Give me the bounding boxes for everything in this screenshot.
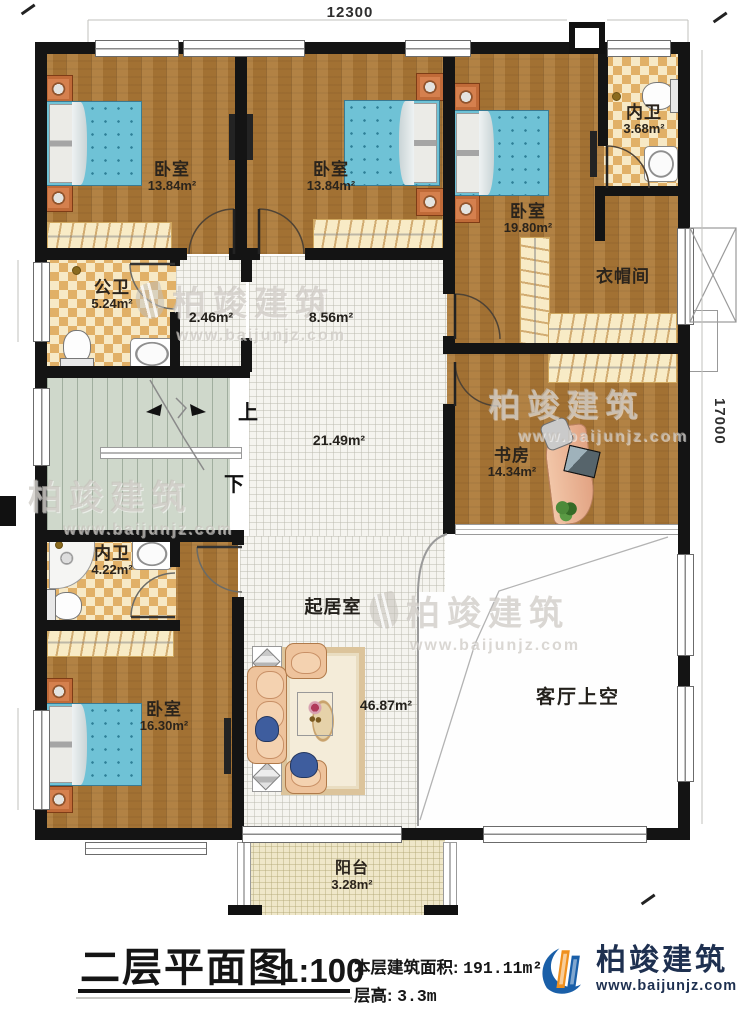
window bbox=[677, 554, 694, 656]
wall bbox=[241, 260, 252, 282]
window bbox=[95, 40, 179, 57]
wall bbox=[35, 366, 250, 378]
floor-corridor-hall bbox=[249, 256, 447, 544]
label-hall: 21.49m² bbox=[299, 433, 379, 448]
title-rule-thin bbox=[76, 997, 352, 999]
dimension-tick bbox=[641, 894, 656, 905]
sink-ensuite-top bbox=[644, 146, 678, 182]
wall bbox=[443, 343, 678, 354]
cloakroom-rack-top bbox=[548, 313, 677, 345]
dimension-right: 17000 bbox=[711, 398, 728, 445]
label-bedroom-d: 卧室16.30m² bbox=[119, 701, 209, 732]
brand-logo: 柏竣建筑 www.baijunjz.com bbox=[536, 941, 737, 999]
toilet-ensuite-bottom bbox=[52, 592, 82, 620]
cloakroom-rack-vertical bbox=[520, 237, 550, 345]
sofa-long bbox=[247, 666, 287, 764]
wall bbox=[443, 54, 455, 260]
light-fixture bbox=[55, 541, 63, 549]
dimension-top: 12300 bbox=[310, 4, 390, 21]
floor-height-label: 层高: bbox=[354, 987, 393, 1005]
brand-logo-icon bbox=[536, 941, 590, 999]
window bbox=[183, 40, 305, 57]
wall bbox=[598, 186, 690, 196]
nightstand bbox=[416, 73, 444, 101]
floor-living-void bbox=[445, 530, 678, 830]
wall bbox=[443, 260, 455, 294]
wall bbox=[595, 186, 605, 241]
nightstand bbox=[452, 83, 480, 111]
wall bbox=[229, 248, 247, 260]
wall bbox=[232, 530, 244, 545]
floor-area-line: 本层建筑面积: 191.11m² bbox=[354, 954, 542, 978]
label-bedroom-a: 卧室13.84m² bbox=[127, 161, 217, 192]
drawing-scale: 1:100 bbox=[280, 952, 364, 990]
lamp-table bbox=[252, 760, 282, 792]
person-figure bbox=[290, 752, 318, 778]
bed-bedroom-c bbox=[453, 110, 549, 196]
label-stair-up: 上 bbox=[238, 396, 258, 425]
wardrobe-bedroom-b bbox=[313, 219, 443, 250]
wardrobe-bedroom-a bbox=[47, 222, 172, 251]
window bbox=[677, 228, 694, 325]
wardrobe-bedroom-d bbox=[47, 628, 174, 657]
wall bbox=[235, 54, 247, 254]
wall bbox=[241, 338, 252, 372]
balcony-sliding-door bbox=[242, 826, 402, 843]
label-ensuite-top: 内卫3.68m² bbox=[604, 104, 684, 135]
label-study: 书房14.34m² bbox=[467, 447, 557, 478]
label-public-bath: 公卫5.24m² bbox=[67, 279, 157, 310]
window-sill bbox=[85, 842, 207, 855]
window bbox=[405, 40, 471, 57]
wall bbox=[35, 620, 180, 631]
window bbox=[33, 388, 50, 466]
nightstand bbox=[45, 678, 73, 705]
nightstand bbox=[452, 195, 480, 223]
floor-height-value: 3.3m bbox=[397, 987, 437, 1006]
light-fixture bbox=[612, 92, 621, 101]
floor-area-value: 191.11m² bbox=[463, 959, 542, 978]
armchair-top bbox=[285, 643, 327, 679]
coffee-table bbox=[297, 692, 333, 736]
column bbox=[0, 496, 16, 526]
nightstand bbox=[416, 188, 444, 216]
window bbox=[607, 40, 671, 57]
wall bbox=[247, 248, 260, 260]
dimension-tick bbox=[21, 4, 36, 15]
wall bbox=[305, 248, 455, 260]
wall bbox=[35, 248, 187, 260]
label-living-void: 客厅上空 bbox=[518, 688, 638, 708]
drawing-title: 二层平面图 bbox=[80, 948, 290, 988]
label-stair-down: 下 bbox=[224, 468, 244, 497]
title-block: 二层平面图 1:100 本层建筑面积: 191.11m² 层高: 3.3m 柏竣… bbox=[0, 915, 750, 1017]
tv-bedroom-b bbox=[247, 114, 253, 160]
wall bbox=[443, 500, 455, 534]
window bbox=[33, 710, 50, 810]
label-ensuite-bottom: 内卫4.22m² bbox=[67, 545, 157, 576]
person-figure bbox=[255, 716, 279, 742]
brand-name: 柏竣建筑 bbox=[596, 946, 737, 976]
nightstand bbox=[44, 75, 73, 103]
wall bbox=[232, 597, 244, 828]
label-balcony: 阳台3.28m² bbox=[312, 861, 392, 891]
floor-plan-drawing: 12300 17000 柏竣建筑 www.baijunjz.com 柏竣建筑 w… bbox=[0, 0, 750, 915]
study-plant bbox=[554, 500, 578, 522]
label-living-area: 46.87m² bbox=[346, 698, 426, 713]
wall bbox=[170, 260, 180, 266]
tv-bedroom-c bbox=[590, 131, 597, 177]
label-hall-small: 2.46m² bbox=[171, 310, 251, 325]
floor-plan-page: 12300 17000 柏竣建筑 www.baijunjz.com 柏竣建筑 w… bbox=[0, 0, 750, 1017]
label-corridor: 8.56m² bbox=[291, 310, 371, 325]
stair-handrail bbox=[100, 447, 242, 459]
label-bedroom-c: 卧室19.80m² bbox=[483, 203, 573, 234]
void-edge-rail bbox=[455, 524, 680, 535]
wall bbox=[35, 530, 242, 542]
light-fixture bbox=[72, 266, 81, 275]
dimension-tick bbox=[713, 12, 728, 23]
brand-url: www.baijunjz.com bbox=[596, 978, 737, 994]
cloakroom-rack-bottom bbox=[548, 352, 677, 383]
floor-height-line: 层高: 3.3m bbox=[354, 982, 437, 1006]
window bbox=[483, 826, 647, 843]
tv-bedroom-d bbox=[224, 718, 231, 774]
toilet-tank bbox=[46, 589, 56, 623]
label-living: 起居室 bbox=[283, 598, 383, 617]
floor-area-label: 本层建筑面积: bbox=[354, 959, 459, 977]
label-cloakroom: 衣帽间 bbox=[573, 268, 673, 286]
window bbox=[677, 686, 694, 782]
label-bedroom-b: 卧室13.84m² bbox=[286, 161, 376, 192]
chimney bbox=[569, 22, 605, 54]
wall bbox=[170, 537, 180, 567]
nightstand bbox=[44, 184, 73, 212]
window bbox=[33, 262, 50, 342]
